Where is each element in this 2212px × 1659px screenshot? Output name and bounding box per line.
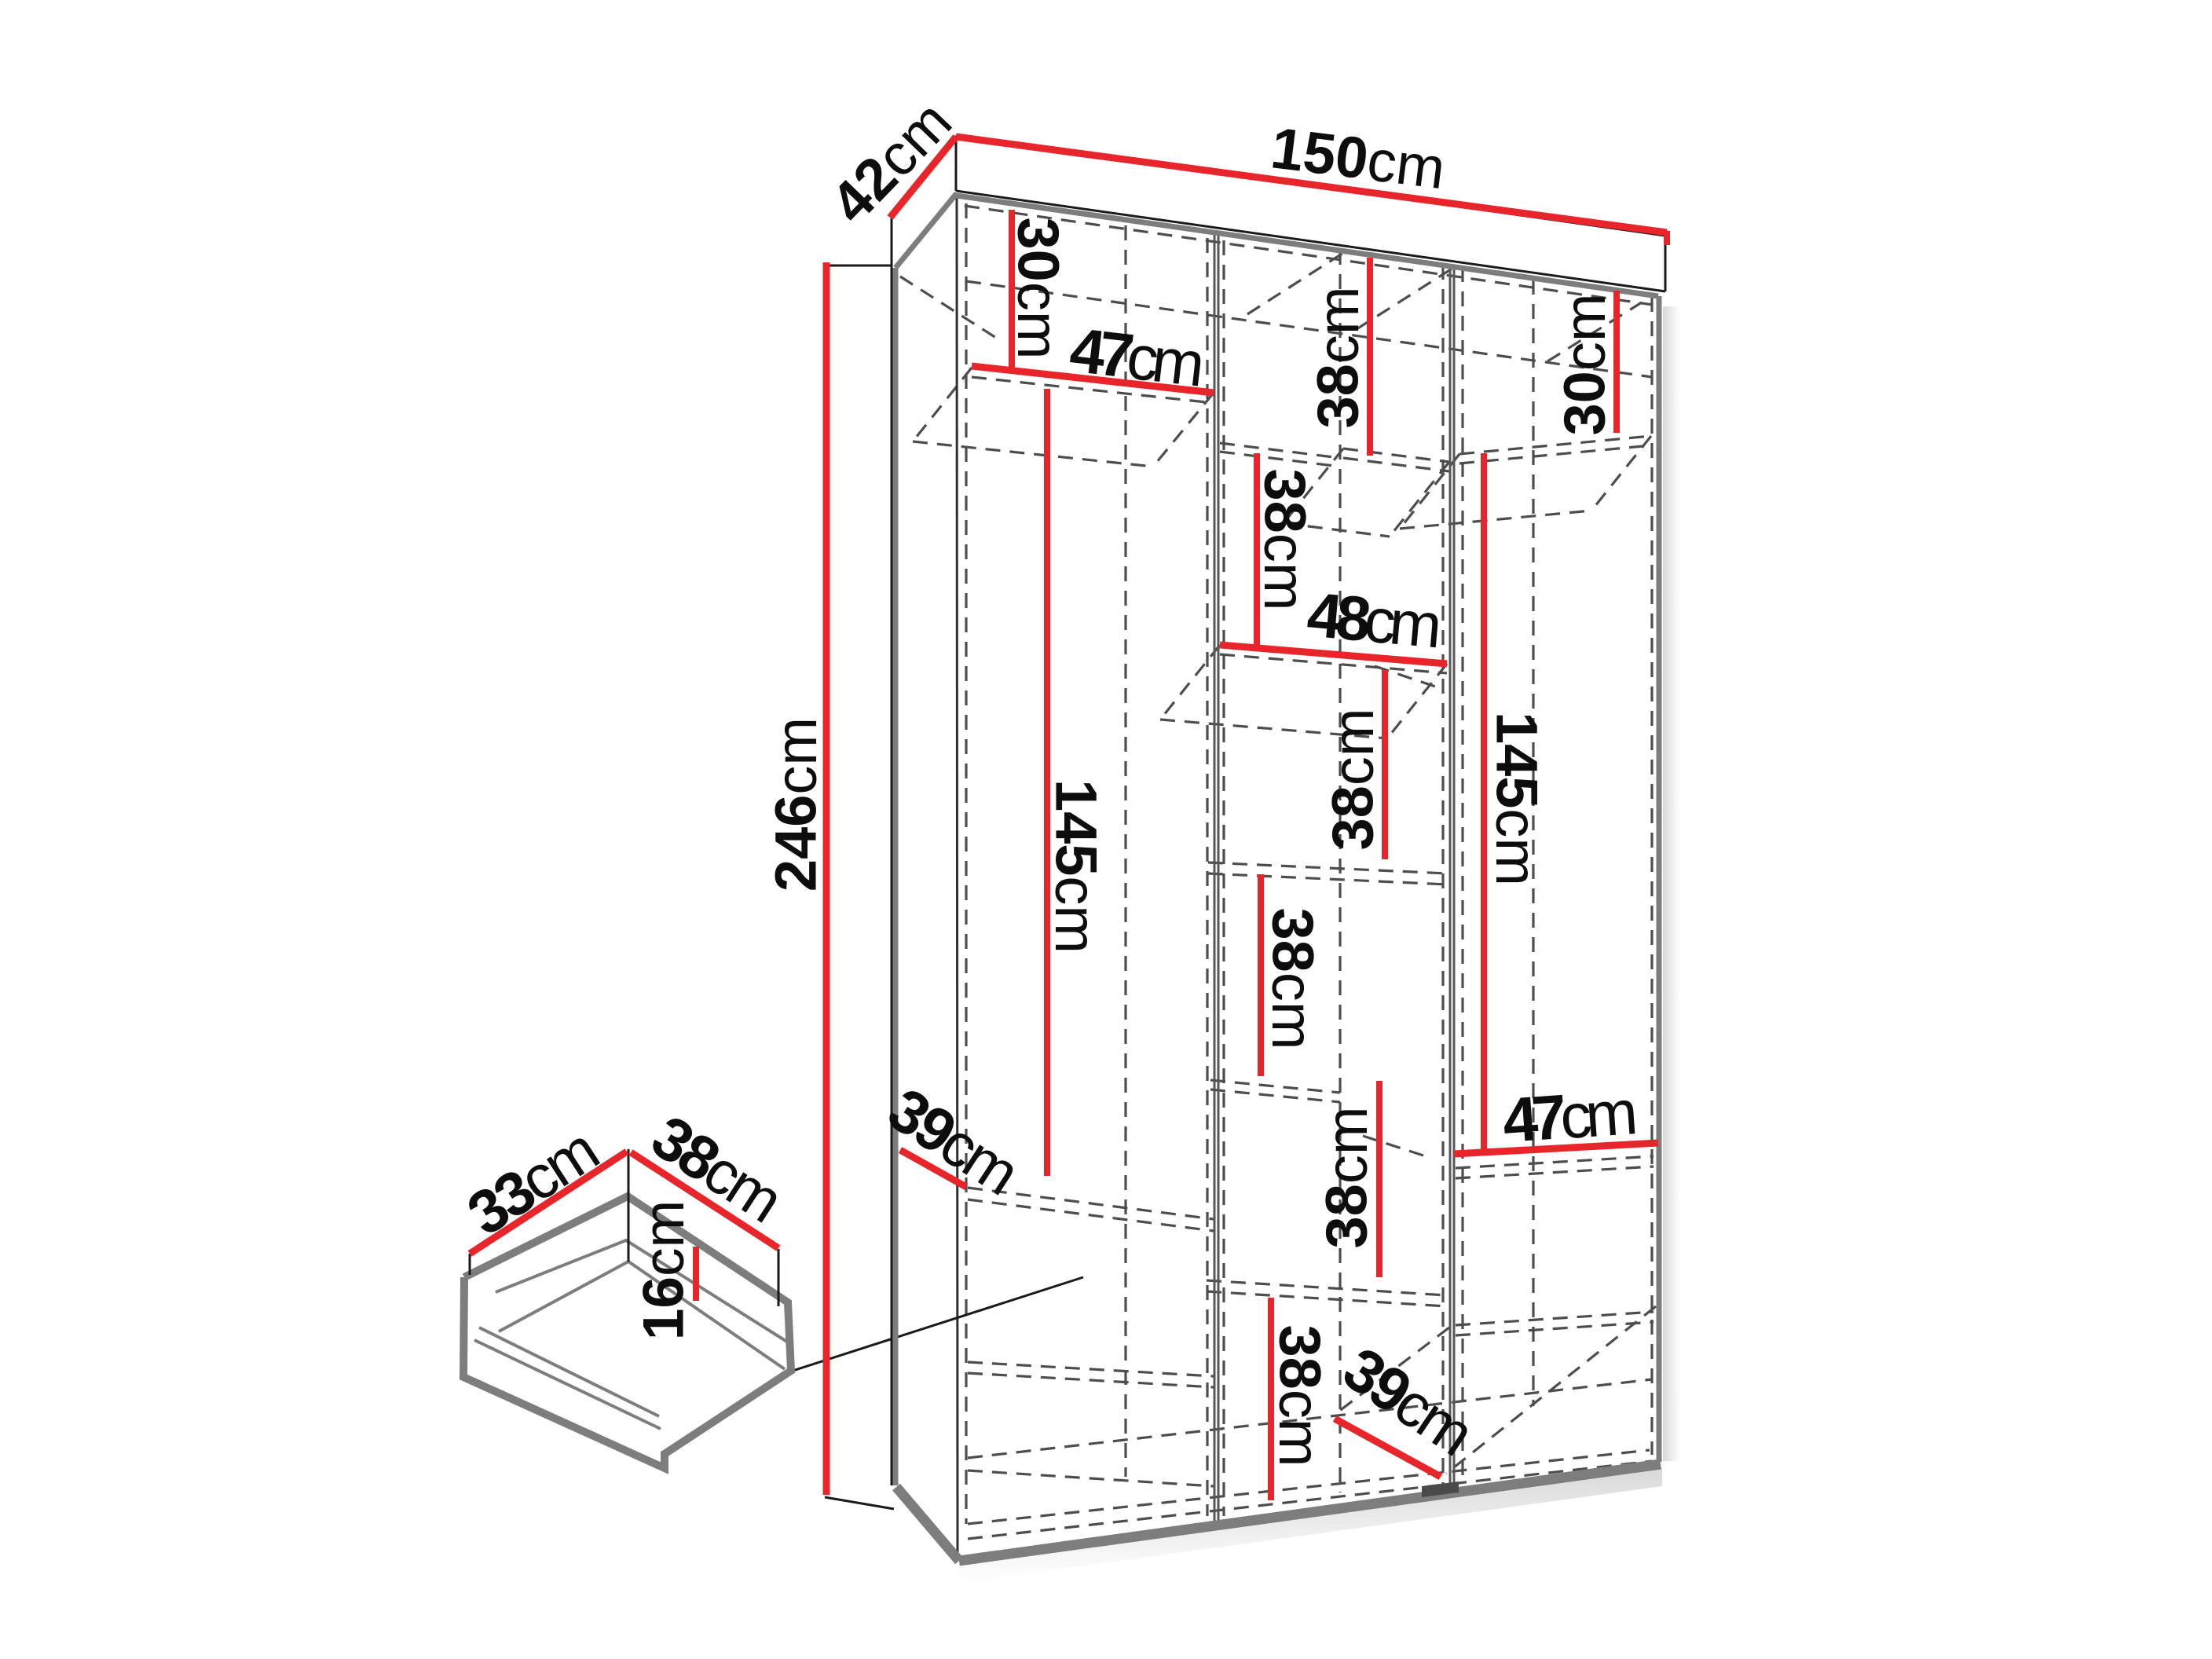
svg-text:38cm: 38cm bbox=[1261, 908, 1326, 1050]
svg-text:145cm: 145cm bbox=[1044, 779, 1109, 954]
svg-text:47cm: 47cm bbox=[1500, 1077, 1636, 1155]
svg-text:30cm: 30cm bbox=[1552, 294, 1617, 436]
svg-text:30cm: 30cm bbox=[1006, 218, 1071, 360]
svg-text:246cm: 246cm bbox=[764, 717, 829, 892]
svg-text:47cm: 47cm bbox=[1067, 315, 1205, 399]
svg-text:38cm: 38cm bbox=[1253, 469, 1318, 611]
svg-text:38cm: 38cm bbox=[1314, 1107, 1379, 1249]
svg-text:38cm: 38cm bbox=[1268, 1325, 1333, 1467]
svg-text:16cm: 16cm bbox=[632, 1200, 696, 1341]
svg-text:48cm: 48cm bbox=[1305, 580, 1441, 661]
svg-text:38cm: 38cm bbox=[1306, 287, 1371, 429]
svg-text:38cm: 38cm bbox=[1320, 709, 1386, 851]
svg-text:145cm: 145cm bbox=[1485, 712, 1550, 886]
